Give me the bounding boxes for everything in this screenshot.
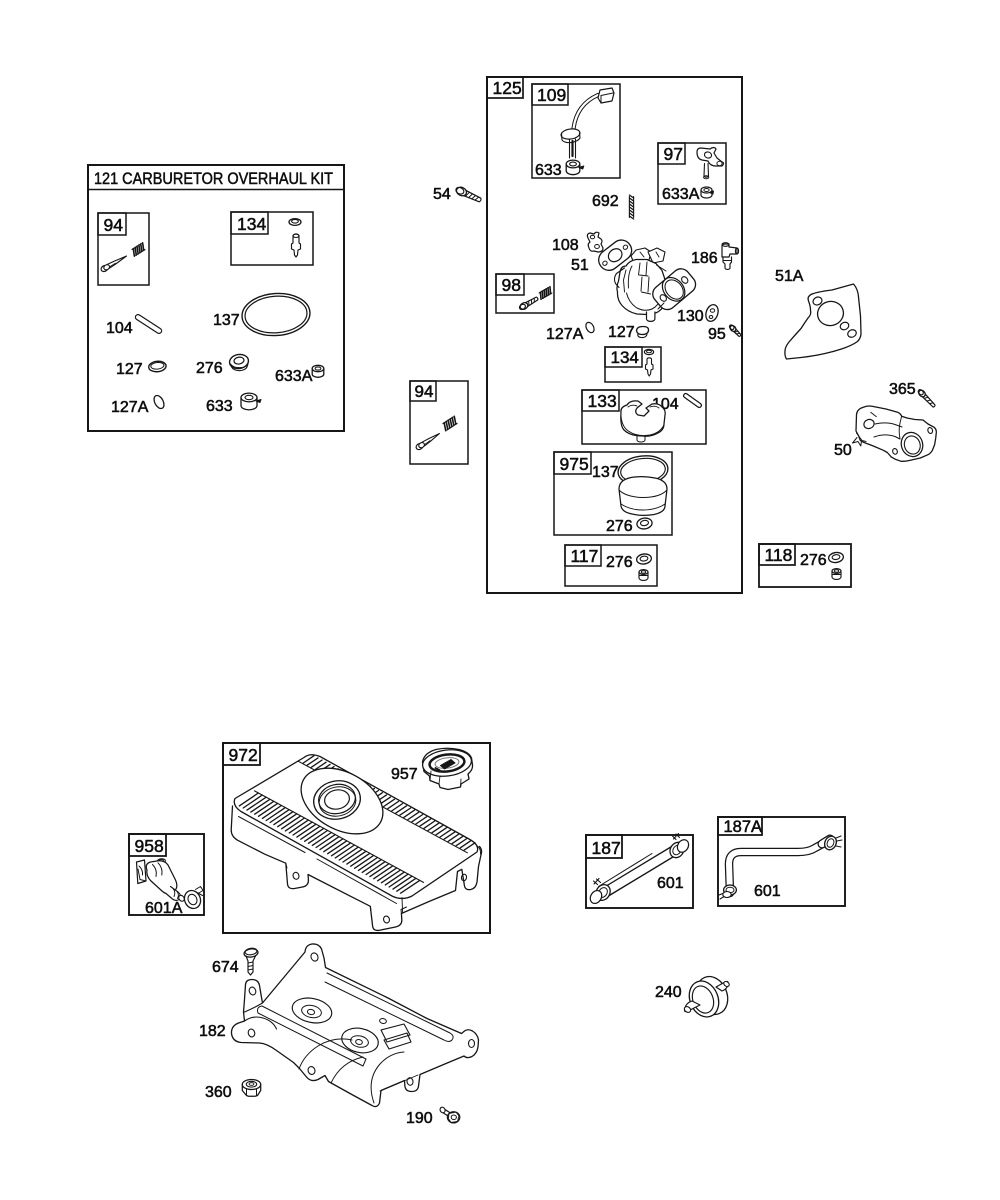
svg-text:94: 94 bbox=[104, 215, 124, 235]
svg-text:972: 972 bbox=[229, 745, 258, 765]
svg-text:360: 360 bbox=[205, 1084, 232, 1101]
svg-text:127: 127 bbox=[116, 361, 143, 378]
svg-text:240: 240 bbox=[655, 984, 682, 1001]
svg-text:51: 51 bbox=[571, 257, 589, 274]
svg-text:187: 187 bbox=[592, 838, 621, 858]
svg-text:127A: 127A bbox=[111, 399, 149, 416]
svg-text:186: 186 bbox=[691, 250, 718, 267]
svg-text:127: 127 bbox=[608, 324, 635, 341]
svg-text:957: 957 bbox=[391, 766, 418, 783]
svg-text:276: 276 bbox=[606, 518, 633, 535]
svg-text:633A: 633A bbox=[662, 186, 700, 203]
svg-text:118: 118 bbox=[765, 545, 793, 565]
svg-text:958: 958 bbox=[135, 836, 164, 856]
svg-text:365: 365 bbox=[889, 381, 916, 398]
svg-text:98: 98 bbox=[502, 275, 521, 295]
svg-text:276: 276 bbox=[800, 552, 827, 569]
svg-text:975: 975 bbox=[560, 454, 589, 474]
svg-text:137: 137 bbox=[592, 464, 619, 481]
svg-text:117: 117 bbox=[571, 546, 599, 566]
svg-text:104: 104 bbox=[106, 320, 133, 337]
svg-text:50: 50 bbox=[834, 442, 852, 459]
svg-text:633: 633 bbox=[535, 162, 562, 179]
svg-text:674: 674 bbox=[212, 959, 239, 976]
svg-text:187A: 187A bbox=[724, 818, 763, 836]
svg-text:276: 276 bbox=[196, 360, 223, 377]
svg-text:94: 94 bbox=[415, 382, 434, 401]
svg-text:127A: 127A bbox=[546, 326, 584, 343]
svg-text:108: 108 bbox=[552, 237, 579, 254]
svg-text:51A: 51A bbox=[775, 268, 804, 285]
svg-text:134: 134 bbox=[611, 348, 639, 367]
svg-text:97: 97 bbox=[664, 144, 683, 164]
svg-text:121 CARBURETOR OVERHAUL KIT: 121 CARBURETOR OVERHAUL KIT bbox=[94, 169, 333, 188]
svg-text:190: 190 bbox=[406, 1110, 433, 1127]
svg-text:601: 601 bbox=[754, 883, 781, 900]
svg-text:133: 133 bbox=[588, 391, 617, 411]
svg-text:633A: 633A bbox=[275, 368, 313, 385]
svg-text:601: 601 bbox=[657, 875, 684, 892]
svg-text:109: 109 bbox=[537, 85, 566, 105]
svg-text:692: 692 bbox=[592, 193, 619, 210]
svg-text:633: 633 bbox=[206, 398, 233, 415]
svg-text:134: 134 bbox=[237, 214, 266, 234]
svg-text:276: 276 bbox=[606, 554, 633, 571]
svg-text:54: 54 bbox=[433, 186, 451, 203]
svg-text:130: 130 bbox=[677, 308, 704, 325]
svg-text:601A: 601A bbox=[145, 900, 183, 917]
svg-text:125: 125 bbox=[493, 78, 522, 98]
svg-text:182: 182 bbox=[199, 1023, 226, 1040]
svg-text:137: 137 bbox=[213, 312, 240, 329]
svg-text:95: 95 bbox=[708, 326, 726, 343]
